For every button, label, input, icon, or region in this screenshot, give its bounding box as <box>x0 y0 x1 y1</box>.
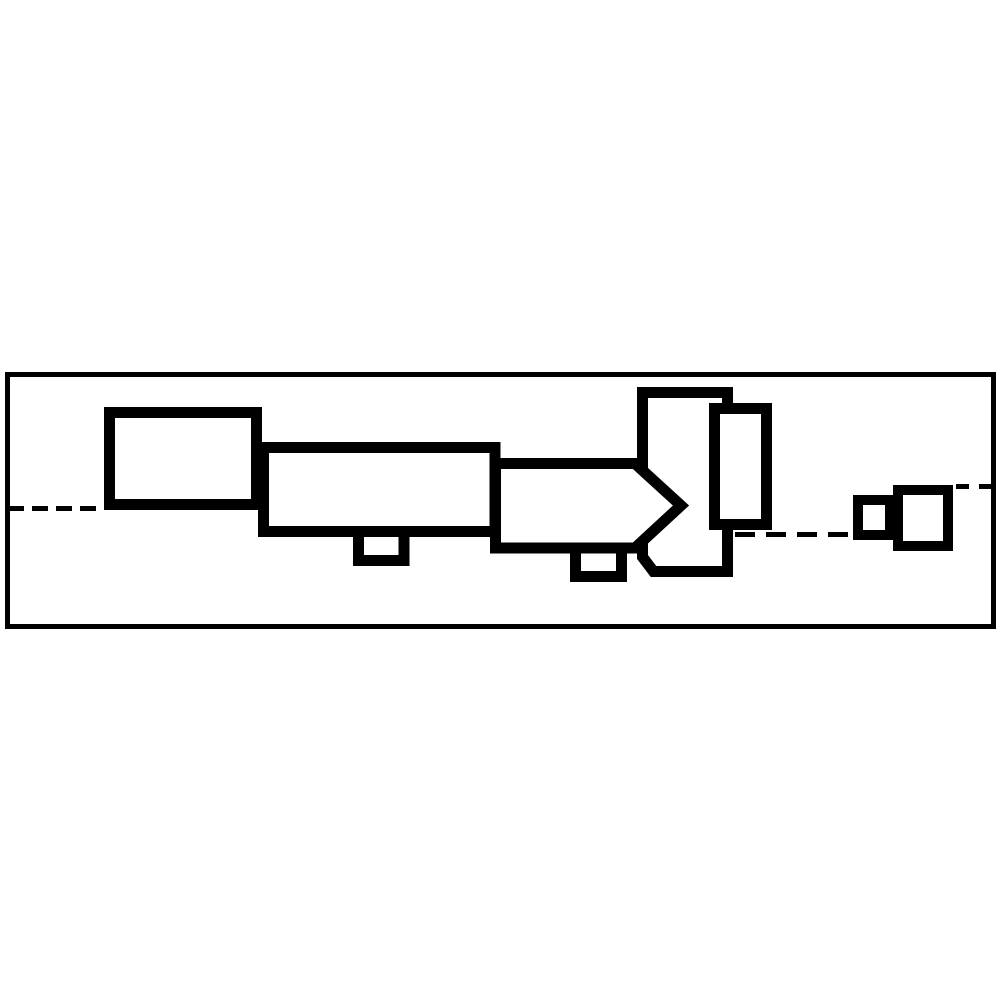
mid-block <box>264 448 496 532</box>
tall-plate <box>715 409 767 525</box>
small-end-block <box>858 500 890 535</box>
arrow-block <box>496 464 682 549</box>
lug-under-mid <box>359 533 405 561</box>
left-block <box>110 413 257 505</box>
figure-canvas <box>0 0 1000 1000</box>
large-end-block <box>898 490 948 546</box>
technical-line-drawing <box>0 0 1000 1000</box>
